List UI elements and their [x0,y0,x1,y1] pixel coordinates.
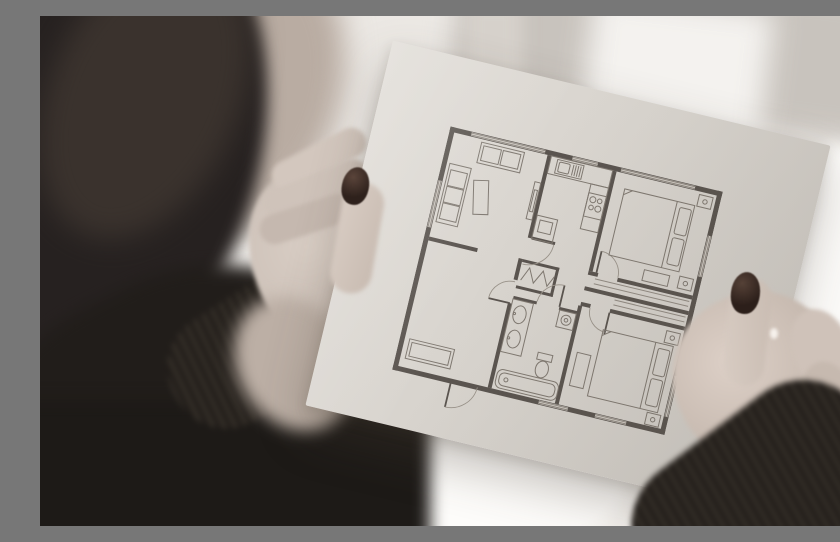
ring-glint [770,328,778,339]
photo-woman-holding-floor-plan [40,16,840,526]
